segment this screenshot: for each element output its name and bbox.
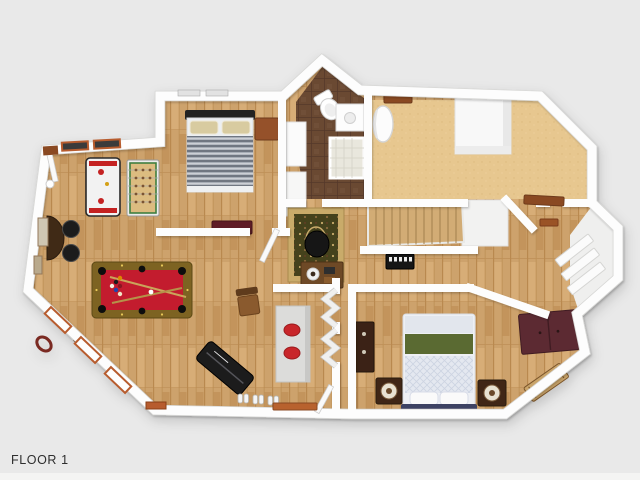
water-heater <box>373 106 393 142</box>
dresser-top <box>255 118 279 140</box>
floorplan <box>28 60 618 414</box>
entry-door-trim <box>43 145 59 155</box>
keyboard-piano <box>386 254 414 269</box>
front-door-mat <box>273 403 317 410</box>
bottom-strip <box>0 473 640 480</box>
gray-table-with-red-plates <box>276 306 310 382</box>
console-cabinet <box>354 322 374 372</box>
staircase <box>368 202 464 246</box>
upper-wall-shelf <box>524 195 564 206</box>
maroon-dresser <box>518 310 579 355</box>
foosball-table <box>127 160 159 216</box>
pool-table <box>92 262 192 318</box>
quilted-bed <box>401 314 477 411</box>
bar-stool <box>63 221 80 238</box>
picture-frame <box>38 218 48 246</box>
wall-wreath <box>34 334 54 354</box>
upper-door-mat <box>540 219 558 226</box>
shower <box>330 138 364 178</box>
picture-frame-small <box>34 256 42 274</box>
nightstand-lamp-left <box>376 378 402 404</box>
nightstand-lamp-right <box>478 380 506 406</box>
chimney-column <box>455 98 511 154</box>
stair-landing <box>462 200 508 246</box>
floorplan-canvas: FLOOR 1 <box>0 0 640 480</box>
wooden-chair <box>235 286 261 316</box>
window-bottom <box>146 402 166 409</box>
striped-bed <box>185 110 255 192</box>
vanity-cabinet <box>336 104 364 131</box>
floor-label: FLOOR 1 <box>11 453 69 467</box>
armchair <box>305 231 329 257</box>
floorplan-render <box>0 0 640 480</box>
bar-stool <box>63 245 80 262</box>
air-hockey-table <box>86 158 120 216</box>
